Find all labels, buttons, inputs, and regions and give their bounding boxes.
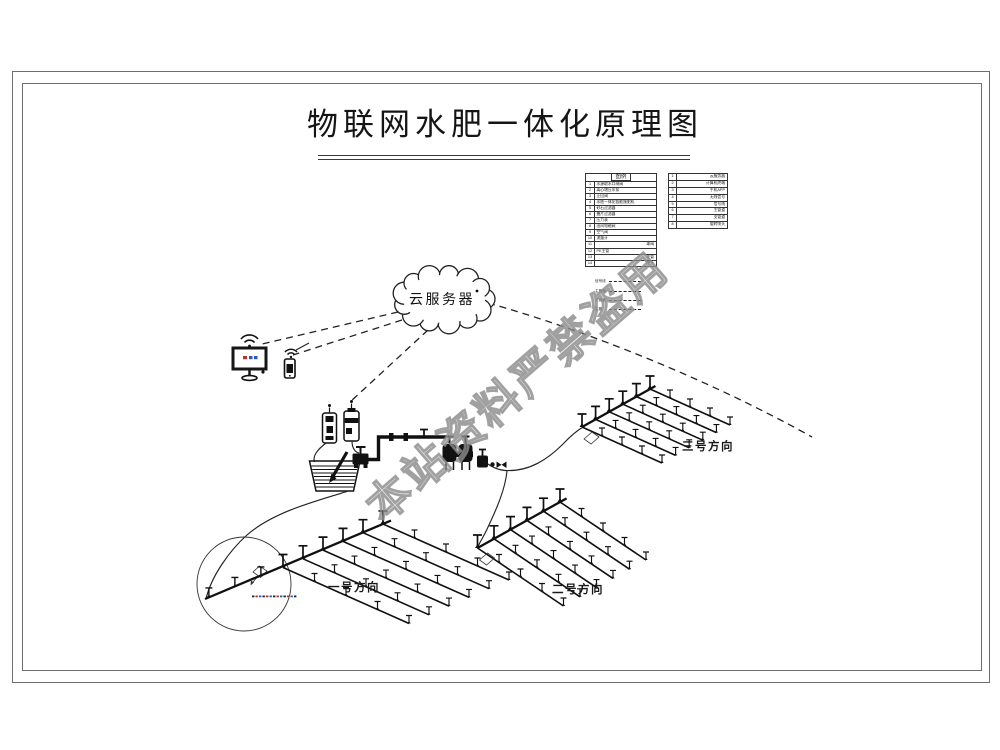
legend-row: 14喷头: [586, 261, 656, 266]
pipe-fitting2: [404, 433, 409, 441]
monitor-screen-blue: [249, 356, 253, 359]
phone-terminal: [285, 343, 310, 378]
suction-pipe: [332, 452, 347, 478]
legend-row: 8旋转喷头: [669, 222, 727, 228]
gate-valve: [497, 462, 507, 469]
field-label: 二号方向: [552, 582, 604, 596]
disc-filter-valve: [479, 450, 486, 456]
mouse-dot: [261, 370, 264, 373]
filter-valves: [446, 437, 470, 445]
page-title: 物联网水肥一体化原理图: [0, 99, 1000, 144]
phone-button: [289, 375, 291, 377]
pipe-fitting: [389, 433, 394, 441]
filter-manifold: [443, 452, 474, 458]
legend-row: 6主管道: [669, 208, 727, 215]
supply-pipe-field1: [206, 492, 347, 600]
pump-icon: [353, 454, 369, 465]
field-grid-3: 三号方向: [578, 376, 735, 463]
water-hatch: [312, 466, 359, 487]
cloud-label: 云服务器: [409, 292, 475, 308]
pump-foot: [354, 465, 358, 469]
pump-foot2: [364, 465, 368, 469]
tank-a-body: [327, 426, 334, 433]
legend-table-secondary: 1云服务器2计算机终端3手机APP4无线信号5信号线6主管道7支管道8旋转喷头: [668, 173, 728, 229]
field-grid-2: 二号方向: [473, 489, 649, 606]
legend-row: 3手机APP: [669, 188, 727, 195]
field-main-line: [478, 498, 567, 548]
line-legend-row: 毛管: [595, 305, 641, 314]
field-label: 一号方向: [328, 580, 380, 594]
legend-row: 2计算机终端: [669, 181, 727, 188]
injector-a-dot: [328, 404, 331, 407]
legend-row: 7支管道: [669, 215, 727, 222]
antenna-line: [296, 343, 309, 350]
tank-a-base: [326, 436, 334, 440]
title-underline: [318, 155, 690, 160]
cloud-server: 云服务器: [393, 266, 495, 334]
field-grid-1: 一号方向: [205, 511, 512, 624]
field-label: 三号方向: [682, 439, 734, 453]
line-type-legend: 信号线主管道支管道毛管: [595, 277, 641, 315]
supply-pipe-field3: [505, 427, 583, 471]
monitor-screen-red: [243, 356, 247, 359]
phone-screen: [287, 364, 294, 373]
supply-pipe-field2: [478, 471, 508, 549]
tank-b-body: [346, 428, 352, 434]
line-legend-row: 支管道: [595, 296, 641, 305]
monitor-terminal: [233, 335, 266, 380]
tank-a-hose: [314, 443, 326, 462]
fertilizer-tank-b: [344, 411, 359, 441]
wifi-icon: [241, 335, 258, 347]
irrigation-fields: 一号方向二号方向三号方向: [205, 376, 734, 624]
injector-b-dot: [350, 400, 353, 403]
detail-callout: [197, 537, 296, 631]
legend-table: 图例 1水源取水口闸阀2离心增压水泵3止回阀4水肥一体化智能施肥机5砂石过滤器6…: [585, 173, 657, 267]
cloud-dot: [476, 290, 479, 293]
link-cloud-to-phone: [293, 320, 402, 355]
line-legend-row: 主管道: [595, 286, 641, 295]
monitor-screen-blue2: [254, 356, 258, 359]
link-cloud-to-controller: [350, 330, 428, 402]
disc-filter: [477, 456, 488, 468]
tank-a-cap: [326, 416, 334, 422]
line-legend-row: 信号线: [595, 277, 641, 286]
tank-b-cap: [348, 408, 356, 412]
monitor-base: [242, 376, 257, 381]
drawing-canvas: 云服务器: [0, 0, 1000, 750]
fertigation-unit: [310, 400, 507, 491]
legend-row: 5信号线: [669, 202, 727, 209]
filter-legs: [446, 462, 470, 470]
legend-row: 1云服务器: [669, 174, 727, 181]
legend-title: 图例: [586, 174, 656, 182]
tank-b-band: [345, 418, 359, 423]
legend-row: 4无线信号: [669, 195, 727, 202]
